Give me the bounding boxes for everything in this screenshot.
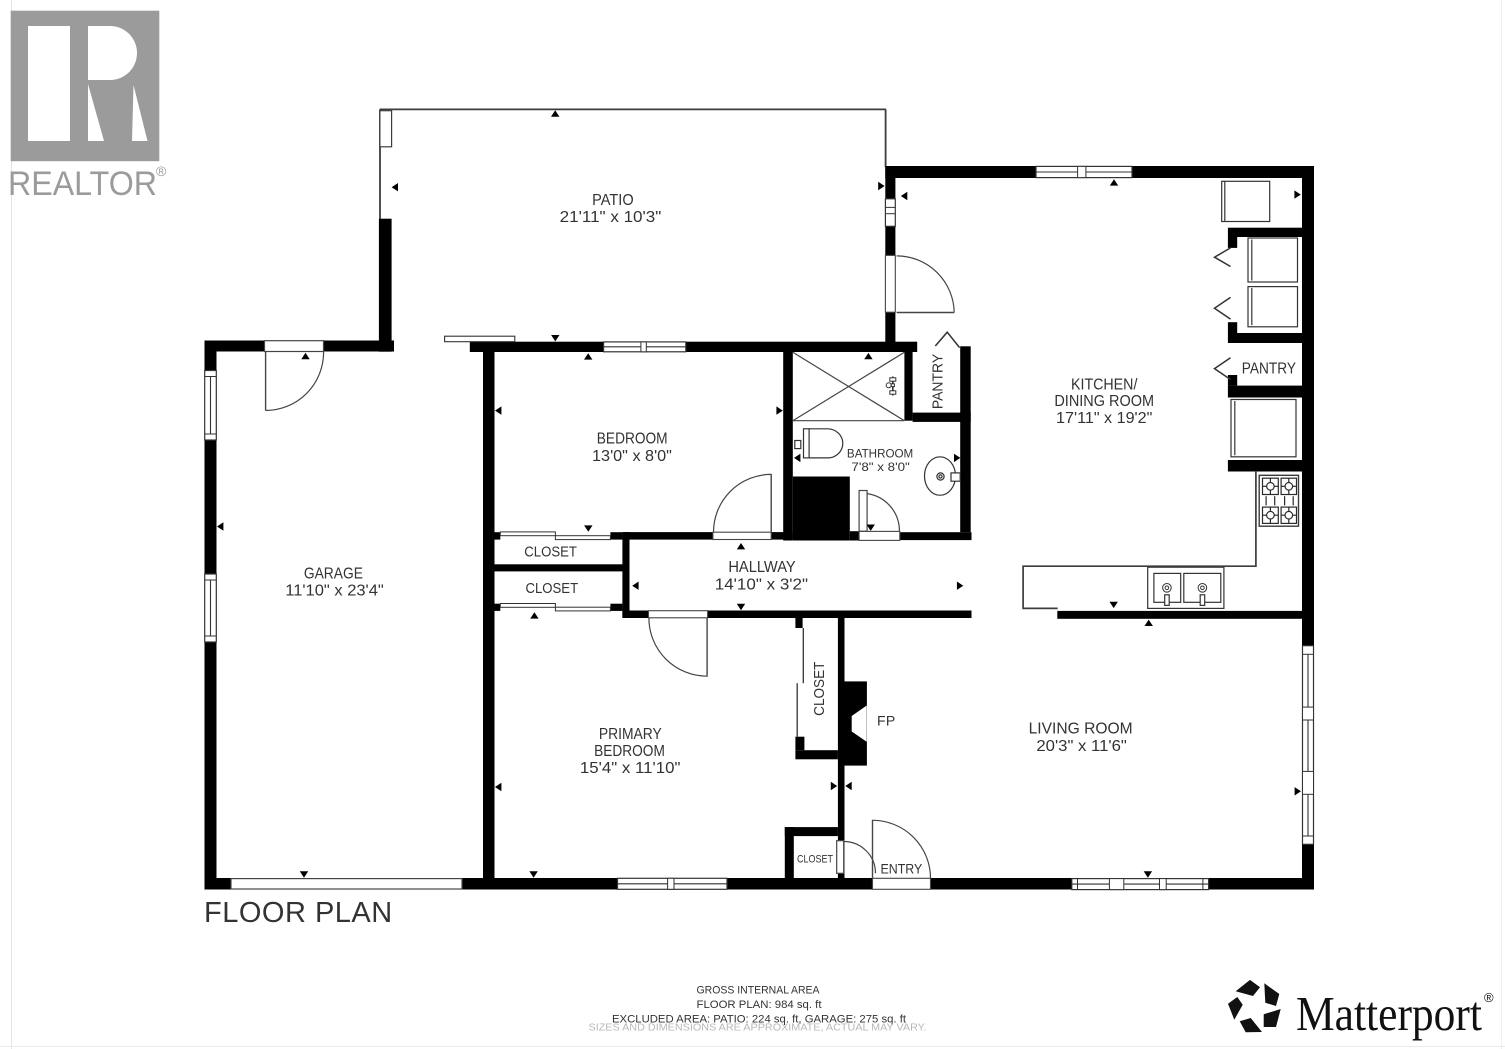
svg-text:17'11" x 19'2": 17'11" x 19'2" bbox=[1056, 410, 1152, 427]
svg-text:PRIMARY: PRIMARY bbox=[599, 726, 662, 743]
svg-text:CLOSET: CLOSET bbox=[526, 580, 579, 597]
svg-text:BATHROOM: BATHROOM bbox=[847, 448, 913, 460]
svg-text:FLOOR PLAN: 984 sq. ft: FLOOR PLAN: 984 sq. ft bbox=[697, 999, 822, 1011]
svg-text:CLOSET: CLOSET bbox=[524, 543, 577, 560]
svg-text:DINING ROOM: DINING ROOM bbox=[1054, 393, 1154, 410]
svg-text:BEDROOM: BEDROOM bbox=[594, 743, 665, 760]
svg-text:CLOSET: CLOSET bbox=[797, 854, 833, 866]
svg-text:Matterport: Matterport bbox=[1296, 986, 1482, 1041]
svg-text:7'8" x 8'0": 7'8" x 8'0" bbox=[851, 460, 909, 474]
svg-text:20'3" x 11'6": 20'3" x 11'6" bbox=[1036, 738, 1127, 755]
svg-text:GROSS INTERNAL AREA: GROSS INTERNAL AREA bbox=[697, 985, 821, 997]
svg-text:GARAGE: GARAGE bbox=[304, 566, 363, 583]
svg-text:FP: FP bbox=[877, 713, 896, 729]
svg-text:PATIO: PATIO bbox=[592, 192, 634, 209]
svg-text:13'0" x 8'0": 13'0" x 8'0" bbox=[592, 448, 672, 465]
svg-text:HALLWAY: HALLWAY bbox=[728, 559, 795, 576]
svg-text:®: ® bbox=[156, 163, 167, 179]
svg-text:21'11" x 10'3": 21'11" x 10'3" bbox=[560, 209, 662, 226]
svg-text:11'10" x 23'4": 11'10" x 23'4" bbox=[285, 583, 384, 600]
svg-text:®: ® bbox=[1484, 990, 1494, 1005]
svg-text:14'10" x 3'2": 14'10" x 3'2" bbox=[715, 576, 808, 593]
svg-text:PANTRY: PANTRY bbox=[930, 354, 947, 409]
svg-text:REALTOR: REALTOR bbox=[8, 165, 157, 203]
svg-text:LIVING ROOM: LIVING ROOM bbox=[1029, 720, 1133, 737]
svg-text:ENTRY: ENTRY bbox=[881, 860, 923, 876]
svg-text:PANTRY: PANTRY bbox=[1242, 360, 1296, 377]
svg-text:FLOOR PLAN: FLOOR PLAN bbox=[204, 897, 393, 929]
svg-text:SIZES AND DIMENSIONS ARE APPRO: SIZES AND DIMENSIONS ARE APPROXIMATE, AC… bbox=[589, 1022, 927, 1034]
svg-text:KITCHEN/: KITCHEN/ bbox=[1071, 377, 1138, 394]
svg-text:15'4" x 11'10": 15'4" x 11'10" bbox=[580, 760, 681, 777]
svg-text:CLOSET: CLOSET bbox=[812, 661, 828, 715]
svg-text:BEDROOM: BEDROOM bbox=[597, 431, 668, 448]
